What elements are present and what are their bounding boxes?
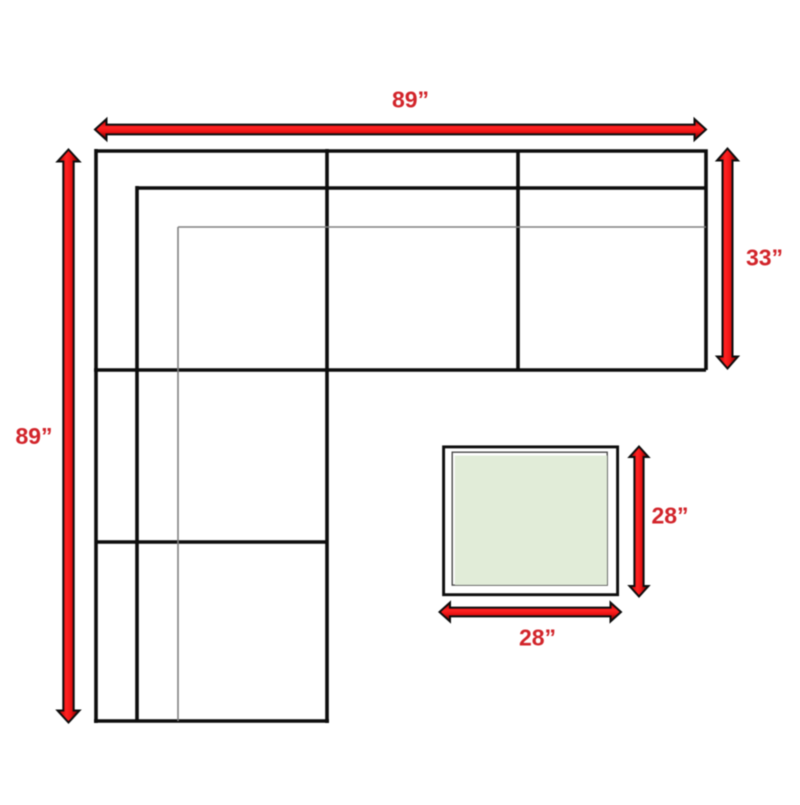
svg-text:28”: 28” [519, 625, 556, 651]
svg-text:89”: 89” [15, 423, 52, 449]
svg-text:89”: 89” [392, 87, 429, 113]
svg-text:33”: 33” [746, 245, 783, 271]
svg-text:28”: 28” [651, 503, 688, 529]
